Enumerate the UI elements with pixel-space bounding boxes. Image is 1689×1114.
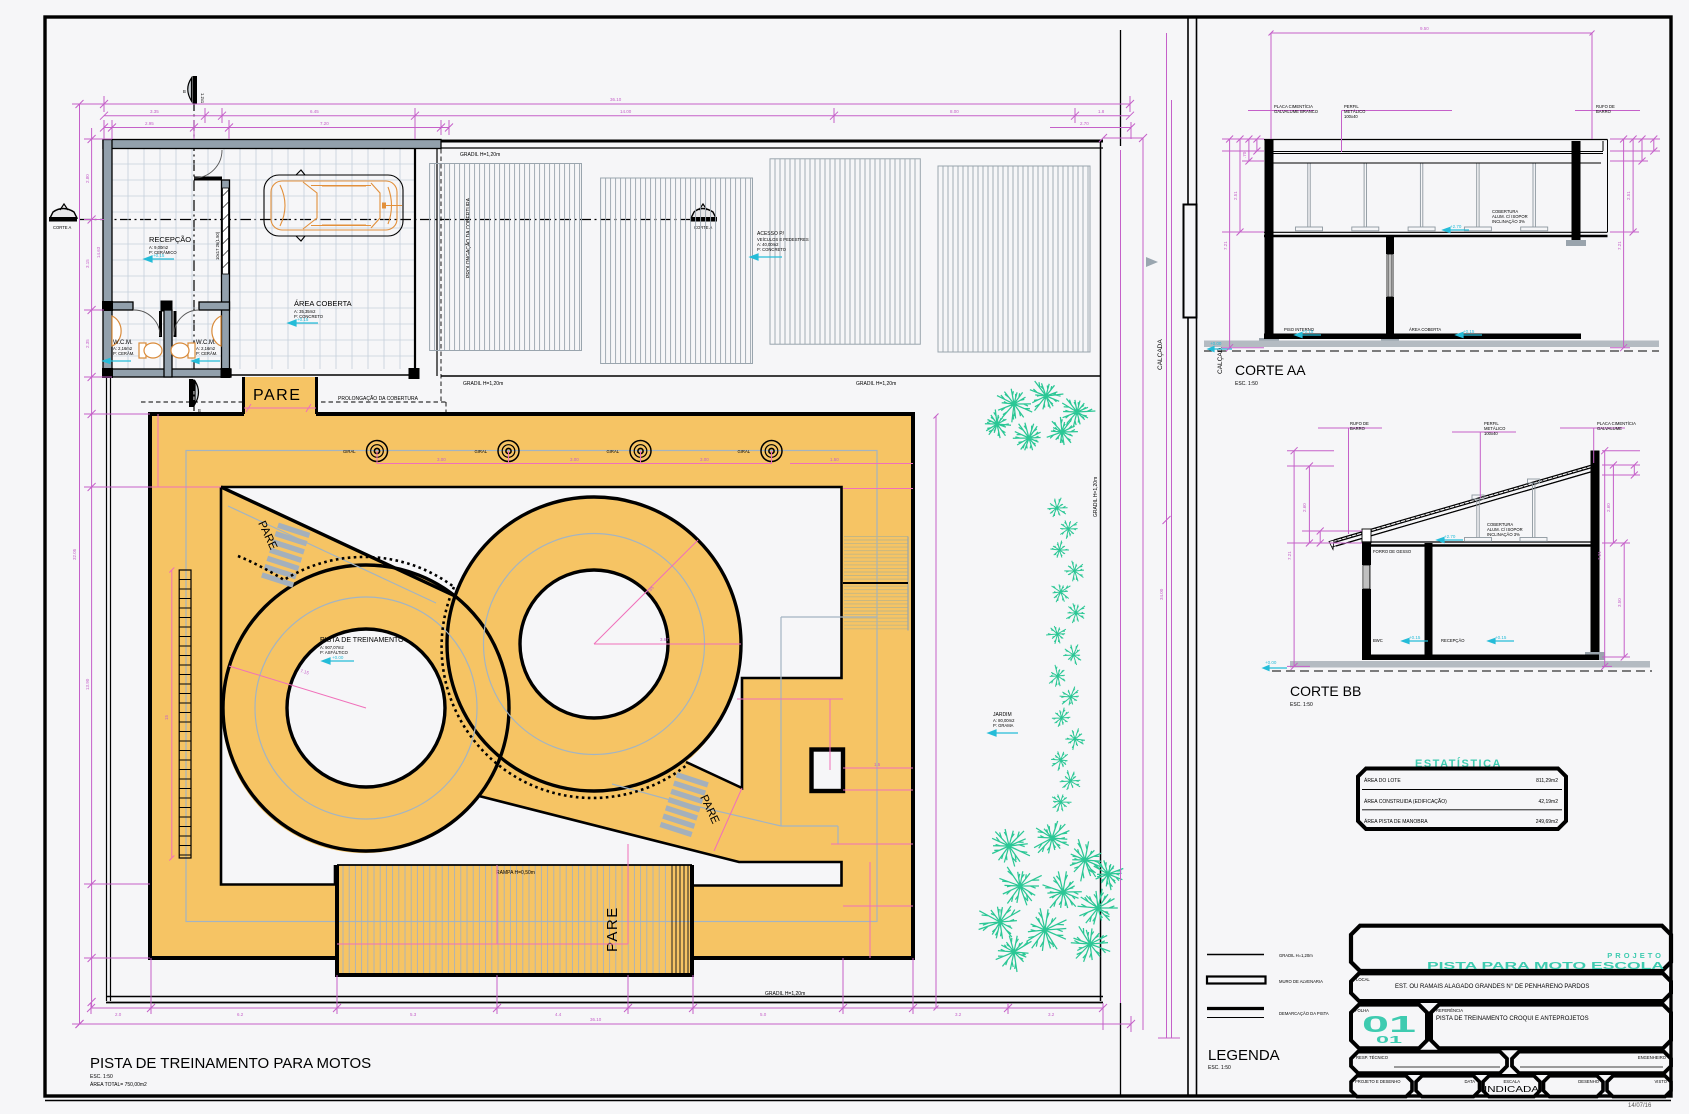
svg-text:+2.70: +2.70 bbox=[1450, 224, 1462, 229]
svg-text:1.50: 1.50 bbox=[830, 457, 839, 462]
svg-text:ESC. 1:50: ESC. 1:50 bbox=[1235, 381, 1258, 387]
svg-text:2.0: 2.0 bbox=[115, 1012, 122, 1017]
svg-text:ESC. 1:50: ESC. 1:50 bbox=[90, 1074, 113, 1080]
svg-text:13.90: 13.90 bbox=[85, 678, 90, 690]
svg-text:RECEPÇÃO: RECEPÇÃO bbox=[149, 235, 191, 244]
svg-text:ÁREA TOTAL= 750,00m2: ÁREA TOTAL= 750,00m2 bbox=[90, 1081, 147, 1088]
svg-text:CORTE A: CORTE A bbox=[694, 225, 713, 230]
svg-text:+0.15: +0.15 bbox=[1409, 635, 1421, 640]
svg-text:2.51: 2.51 bbox=[1626, 191, 1631, 200]
svg-text:INDICADA: INDICADA bbox=[1484, 1084, 1539, 1094]
svg-text:249,69m2: 249,69m2 bbox=[1536, 819, 1558, 825]
svg-text:14/07/16: 14/07/16 bbox=[1628, 1103, 1652, 1109]
svg-text:ÁREA DO LOTE: ÁREA DO LOTE bbox=[1364, 777, 1401, 784]
svg-text:2.95: 2.95 bbox=[145, 121, 154, 126]
svg-text:2.80: 2.80 bbox=[85, 174, 90, 183]
svg-text:+0.15: +0.15 bbox=[297, 317, 309, 322]
svg-text:6.45: 6.45 bbox=[310, 109, 319, 114]
svg-text:GIRAL: GIRAL bbox=[738, 449, 751, 454]
svg-text:3.2: 3.2 bbox=[1048, 1012, 1055, 1017]
svg-text:GIRAL: GIRAL bbox=[343, 449, 356, 454]
svg-text:34.00: 34.00 bbox=[1159, 588, 1164, 600]
svg-text:PROLONGAÇÃO DA COBERTURA: PROLONGAÇÃO DA COBERTURA bbox=[465, 197, 472, 278]
svg-text:811,29m2: 811,29m2 bbox=[1536, 778, 1558, 784]
svg-text:14.00: 14.00 bbox=[620, 109, 632, 114]
svg-text:GIRAL: GIRAL bbox=[475, 449, 488, 454]
svg-text:5.3: 5.3 bbox=[410, 1012, 417, 1017]
svg-text:7.21: 7.21 bbox=[1597, 551, 1602, 560]
svg-text:2.35: 2.35 bbox=[85, 339, 90, 348]
svg-text:PISTA DE TREINAMENTO CROQUI E: PISTA DE TREINAMENTO CROQUI E ANTEPROJET… bbox=[1436, 1016, 1589, 1022]
svg-text:GALVALUME BRANCO: GALVALUME BRANCO bbox=[1274, 109, 1319, 114]
svg-text:2.70: 2.70 bbox=[1080, 121, 1089, 126]
svg-text:LOCAL: LOCAL bbox=[1356, 977, 1370, 982]
svg-text:1.8: 1.8 bbox=[1098, 109, 1105, 114]
svg-text:8.00: 8.00 bbox=[950, 109, 959, 114]
svg-text:RECEPÇÃO: RECEPÇÃO bbox=[1441, 638, 1465, 643]
svg-text:DATA: DATA bbox=[1464, 1079, 1475, 1084]
svg-text:LEGENDA: LEGENDA bbox=[1208, 1047, 1280, 1064]
svg-text:3.00: 3.00 bbox=[570, 457, 579, 462]
svg-text:10x17 26(1.50): 10x17 26(1.50) bbox=[215, 231, 220, 260]
svg-text:ÁREA CONSTRUIDA (EDIFICAÇÃO): ÁREA CONSTRUIDA (EDIFICAÇÃO) bbox=[1364, 798, 1447, 805]
svg-text:+2.70: +2.70 bbox=[1444, 534, 1456, 539]
svg-text:7.20: 7.20 bbox=[320, 121, 329, 126]
svg-text:+0.00: +0.00 bbox=[1210, 341, 1222, 346]
svg-text:.70: .70 bbox=[1242, 151, 1247, 158]
svg-text:MURO DE ALVENARIA: MURO DE ALVENARIA bbox=[1279, 979, 1323, 984]
svg-text:GRADIL H=1,20m: GRADIL H=1,20m bbox=[463, 381, 503, 387]
svg-text:36.10: 36.10 bbox=[590, 1017, 602, 1022]
svg-text:GRADIL H=1,20m: GRADIL H=1,20m bbox=[1279, 953, 1313, 958]
svg-text:ESC. 1:50: ESC. 1:50 bbox=[1290, 702, 1313, 708]
svg-text:3.35: 3.35 bbox=[150, 109, 159, 114]
svg-text:P: CERÂM.: P: CERÂM. bbox=[196, 351, 217, 356]
svg-text:+0.15: +0.15 bbox=[1463, 329, 1475, 334]
svg-text:GRADIL H=1,20m: GRADIL H=1,20m bbox=[460, 152, 500, 158]
svg-text:GALVALUME: GALVALUME bbox=[1597, 426, 1622, 431]
svg-text:BARRO: BARRO bbox=[1350, 426, 1366, 431]
svg-text:PARE: PARE bbox=[604, 906, 621, 952]
svg-text:ÁREA PISTA DE MANOBRA: ÁREA PISTA DE MANOBRA bbox=[1364, 818, 1428, 825]
svg-text:ENGENHEIRO: ENGENHEIRO bbox=[1638, 1055, 1667, 1060]
svg-text:BARRO: BARRO bbox=[1596, 109, 1612, 114]
svg-text:PROJETO E DESENHO: PROJETO E DESENHO bbox=[1355, 1079, 1401, 1084]
svg-text:36.10: 36.10 bbox=[610, 97, 622, 102]
svg-text:P: GRAMA: P: GRAMA bbox=[993, 723, 1014, 728]
svg-text:PISTA DE TREINAMENTO: PISTA DE TREINAMENTO bbox=[320, 637, 404, 644]
svg-text:GRADIL H=1,20m: GRADIL H=1,20m bbox=[765, 991, 805, 997]
svg-text:DESENHO: DESENHO bbox=[1578, 1079, 1599, 1084]
svg-text:PISTA DE TREINAMENTO PARA MOTO: PISTA DE TREINAMENTO PARA MOTOS bbox=[90, 1055, 371, 1072]
svg-text:15: 15 bbox=[164, 714, 169, 720]
svg-text:INCLINAÇÃO 3%: INCLINAÇÃO 3% bbox=[1487, 532, 1520, 537]
svg-text:REFERÊNCIA: REFERÊNCIA bbox=[1436, 1008, 1463, 1013]
svg-text:EST. OU RAMAIS ALAGADO GRANDES: EST. OU RAMAIS ALAGADO GRANDES N° DE PEN… bbox=[1395, 984, 1589, 990]
svg-text:GRADIL H=1,20m: GRADIL H=1,20m bbox=[1093, 477, 1099, 517]
svg-text:CORTE BB: CORTE BB bbox=[1290, 683, 1361, 699]
svg-text:32.05: 32.05 bbox=[72, 548, 77, 560]
svg-text:P: CERÂM.: P: CERÂM. bbox=[113, 351, 134, 356]
svg-text:CORTE AA: CORTE AA bbox=[1235, 362, 1306, 378]
svg-text:6.2: 6.2 bbox=[237, 1012, 244, 1017]
svg-text:GIRAL: GIRAL bbox=[607, 449, 620, 454]
svg-text:CORTE A: CORTE A bbox=[53, 225, 72, 230]
svg-text:1.5: 1.5 bbox=[874, 762, 881, 767]
svg-text:+0.00: +0.00 bbox=[332, 655, 344, 660]
svg-text:5.0: 5.0 bbox=[760, 1012, 767, 1017]
svg-text:ÁREA COBERTA: ÁREA COBERTA bbox=[1409, 327, 1441, 332]
svg-text:7.21: 7.21 bbox=[1617, 241, 1622, 250]
svg-text:+0.15: +0.15 bbox=[1495, 635, 1507, 640]
svg-text:3.00: 3.00 bbox=[700, 457, 709, 462]
svg-text:DEMARCAÇÃO DA PISTA: DEMARCAÇÃO DA PISTA bbox=[1279, 1011, 1329, 1016]
svg-text:PISTA PARA MOTO ESCOLA: PISTA PARA MOTO ESCOLA bbox=[1427, 961, 1664, 972]
svg-text:01: 01 bbox=[1362, 1011, 1416, 1037]
svg-text:7.21: 7.21 bbox=[1287, 551, 1292, 560]
svg-text:RAMPA H=0,50m: RAMPA H=0,50m bbox=[496, 870, 535, 876]
svg-text:3.67: 3.67 bbox=[660, 637, 669, 642]
svg-text:2.51: 2.51 bbox=[1233, 191, 1238, 200]
svg-text:ÁREA COBERTA: ÁREA COBERTA bbox=[294, 299, 352, 308]
svg-text:1.2x1: 1.2x1 bbox=[200, 93, 205, 104]
svg-text:9.50: 9.50 bbox=[1420, 26, 1429, 31]
svg-text:B: B bbox=[183, 89, 186, 94]
svg-text:01: 01 bbox=[1376, 1035, 1403, 1046]
svg-text:2.60: 2.60 bbox=[1302, 503, 1307, 512]
svg-text:100x40: 100x40 bbox=[1484, 431, 1498, 436]
svg-text:2.60: 2.60 bbox=[1606, 503, 1611, 512]
svg-text:INCLINAÇÃO 3%: INCLINAÇÃO 3% bbox=[1492, 219, 1525, 224]
svg-text:+0.00: +0.00 bbox=[1265, 660, 1277, 665]
svg-text:3.50: 3.50 bbox=[1617, 598, 1622, 607]
svg-text:4.4: 4.4 bbox=[555, 1012, 562, 1017]
svg-text:ESC. 1:50: ESC. 1:50 bbox=[1208, 1065, 1231, 1071]
svg-text:CALÇADA: CALÇADA bbox=[1157, 339, 1164, 370]
svg-text:RESP. TÉCNICO: RESP. TÉCNICO bbox=[1356, 1055, 1389, 1060]
svg-text:14.63: 14.63 bbox=[96, 246, 101, 258]
svg-text:GRADIL H=1,20m: GRADIL H=1,20m bbox=[856, 381, 896, 387]
svg-text:PARE: PARE bbox=[253, 387, 301, 404]
svg-text:FORRO DE GESSO: FORRO DE GESSO bbox=[1373, 549, 1412, 554]
svg-text:PROLONGAÇÃO DA COBERTURA: PROLONGAÇÃO DA COBERTURA bbox=[338, 395, 419, 402]
svg-text:VISTO: VISTO bbox=[1655, 1079, 1668, 1084]
svg-text:42,19m2: 42,19m2 bbox=[1539, 799, 1559, 805]
svg-text:7.21: 7.21 bbox=[1223, 241, 1228, 250]
svg-text:+0.15: +0.15 bbox=[153, 253, 165, 258]
svg-text:3.00: 3.00 bbox=[437, 457, 446, 462]
svg-text:3.15: 3.15 bbox=[85, 259, 90, 268]
svg-text:3.2: 3.2 bbox=[955, 1012, 962, 1017]
svg-text:PROJETO: PROJETO bbox=[1607, 951, 1664, 960]
svg-text:BWC: BWC bbox=[1373, 638, 1383, 643]
svg-text:P: CONCRETO: P: CONCRETO bbox=[757, 247, 787, 252]
svg-text:+0.15: +0.15 bbox=[1302, 329, 1314, 334]
svg-text:100x40: 100x40 bbox=[1344, 114, 1358, 119]
